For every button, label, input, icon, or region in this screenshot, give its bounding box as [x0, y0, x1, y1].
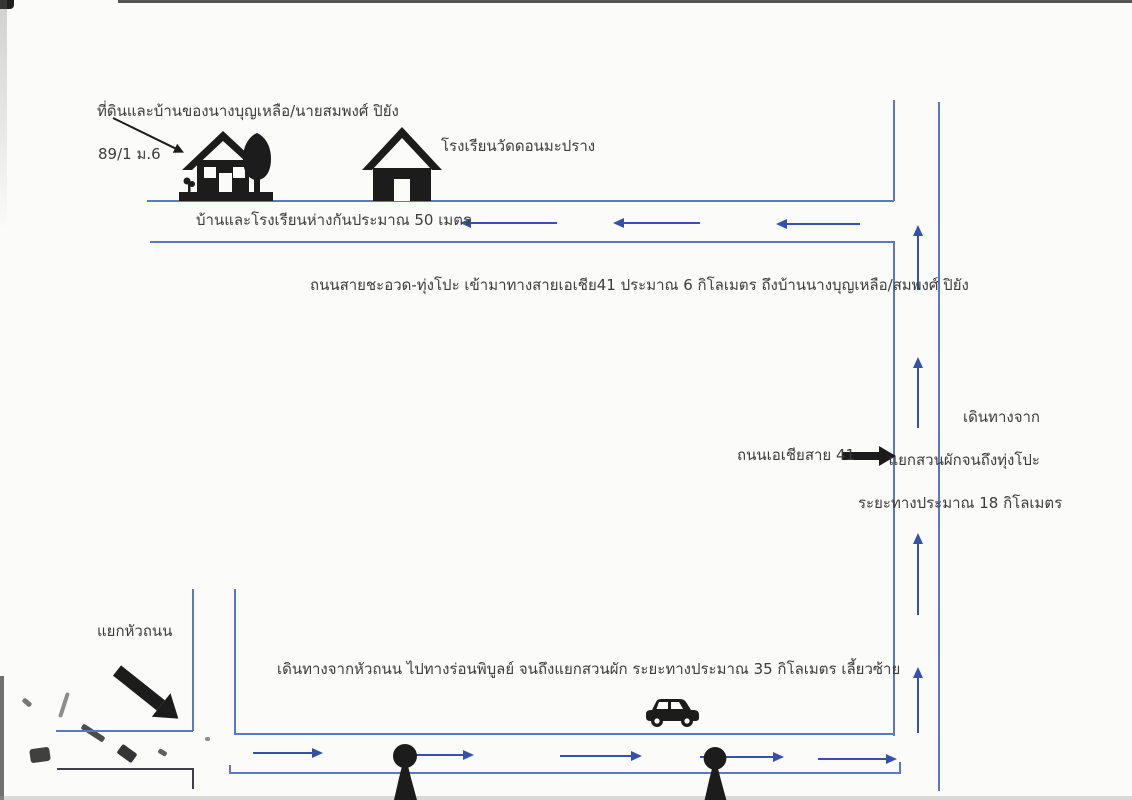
right-route-label-line2: แยกสวนผักจนถึงทุ่งโปะ — [858, 448, 1040, 472]
route-arrow-right — [560, 755, 631, 757]
route-arrow-left — [787, 223, 860, 225]
right-route-label-line1: เดินทางจาก — [858, 405, 1040, 429]
route-arrow-up — [917, 678, 919, 733]
address-label: 89/1 ม.6 — [98, 145, 161, 164]
route-arrow-right — [818, 758, 886, 760]
bottom-road-line — [57, 768, 193, 770]
highway-41-line — [893, 100, 895, 201]
top-road-description-label: ถนนสายชะอวด-ทุ่งโปะ เข้ามาทางสายเอเชีย41… — [310, 276, 969, 295]
junction-label: แยกหัวถนน — [97, 622, 172, 641]
scan-artifact — [22, 697, 33, 707]
route-arrow-right — [253, 752, 312, 754]
owner-annotation-label: ที่ดินและบ้านของนางบุญเหลือ/นายสมพงศ์ ปิ… — [97, 102, 399, 121]
junction-road-line — [234, 589, 236, 734]
highway-41-line — [938, 102, 940, 791]
junction-direction-arrow-icon — [113, 665, 165, 710]
scan-artifact — [157, 748, 167, 757]
junction-road-line — [192, 589, 194, 731]
right-route-label-line3: ระยะทางประมาณ 18 กิโลเมตร — [858, 491, 1040, 515]
bottom-road-line — [229, 772, 901, 774]
tree-marker-icon — [697, 747, 734, 800]
bottom-road-line — [234, 733, 894, 735]
scan-artifact — [29, 747, 51, 764]
route-arrow-left — [624, 222, 700, 224]
bottom-route-description-label: เดินทางจากหัวถนน ไปทางร่อนพิบูลย์ จนถึงแ… — [277, 660, 900, 679]
junction-road-line — [192, 768, 194, 789]
scan-artifact — [0, 676, 4, 800]
scan-artifact — [58, 692, 70, 718]
school-label: โรงเรียนวัดดอนมะปราง — [441, 137, 595, 156]
bottom-road-line — [56, 730, 193, 732]
route-arrow-up — [917, 544, 919, 615]
school-building-icon — [362, 127, 442, 201]
top-road-line — [150, 241, 895, 243]
route-arrow-left — [471, 222, 557, 224]
bottom-road-line — [229, 765, 231, 773]
tree-marker-icon — [387, 744, 424, 800]
scan-artifact — [0, 0, 7, 230]
scan-artifact — [80, 723, 105, 742]
scan-artifact — [118, 0, 1132, 3]
house-with-tree-icon — [176, 129, 280, 202]
house-school-distance-label: บ้านและโรงเรียนห่างกันประมาณ 50 เมตร — [196, 211, 471, 230]
car-icon — [644, 694, 701, 728]
scanned-route-map-page: ที่ดินและบ้านของนางบุญเหลือ/นายสมพงศ์ ปิ… — [0, 0, 1132, 800]
scan-artifact — [0, 796, 1132, 800]
highway-41-label: ถนนเอเชียสาย 41 — [737, 446, 855, 465]
bottom-road-line — [899, 762, 901, 773]
scan-artifact — [205, 737, 210, 741]
scan-artifact — [116, 744, 137, 763]
